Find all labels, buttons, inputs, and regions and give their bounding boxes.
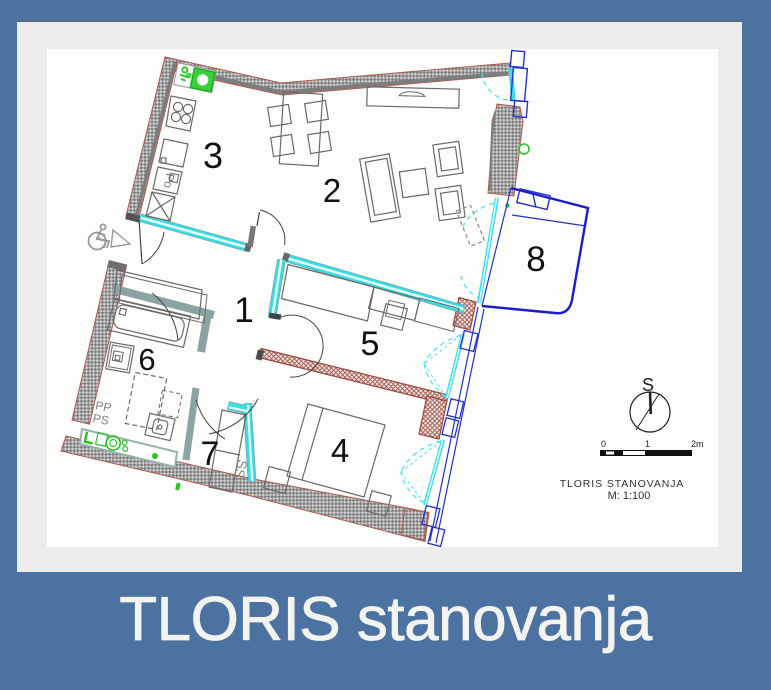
svg-text:2: 2 xyxy=(323,172,341,209)
svg-text:5: 5 xyxy=(361,325,380,363)
svg-text:SS: SS xyxy=(231,458,251,480)
svg-text:PS: PS xyxy=(92,411,110,428)
svg-text:0: 0 xyxy=(601,439,606,449)
svg-text:2m: 2m xyxy=(691,439,704,449)
svg-text:8: 8 xyxy=(526,240,545,279)
svg-text:1: 1 xyxy=(234,291,253,330)
svg-text:7: 7 xyxy=(201,435,220,473)
svg-text:TLORIS STANOVANJA: TLORIS STANOVANJA xyxy=(560,478,685,490)
svg-text:3: 3 xyxy=(203,135,223,176)
svg-text:6: 6 xyxy=(138,342,155,377)
svg-text:1: 1 xyxy=(645,439,650,449)
svg-text:4: 4 xyxy=(331,432,349,469)
svg-text:M: 1:100: M: 1:100 xyxy=(608,490,651,502)
